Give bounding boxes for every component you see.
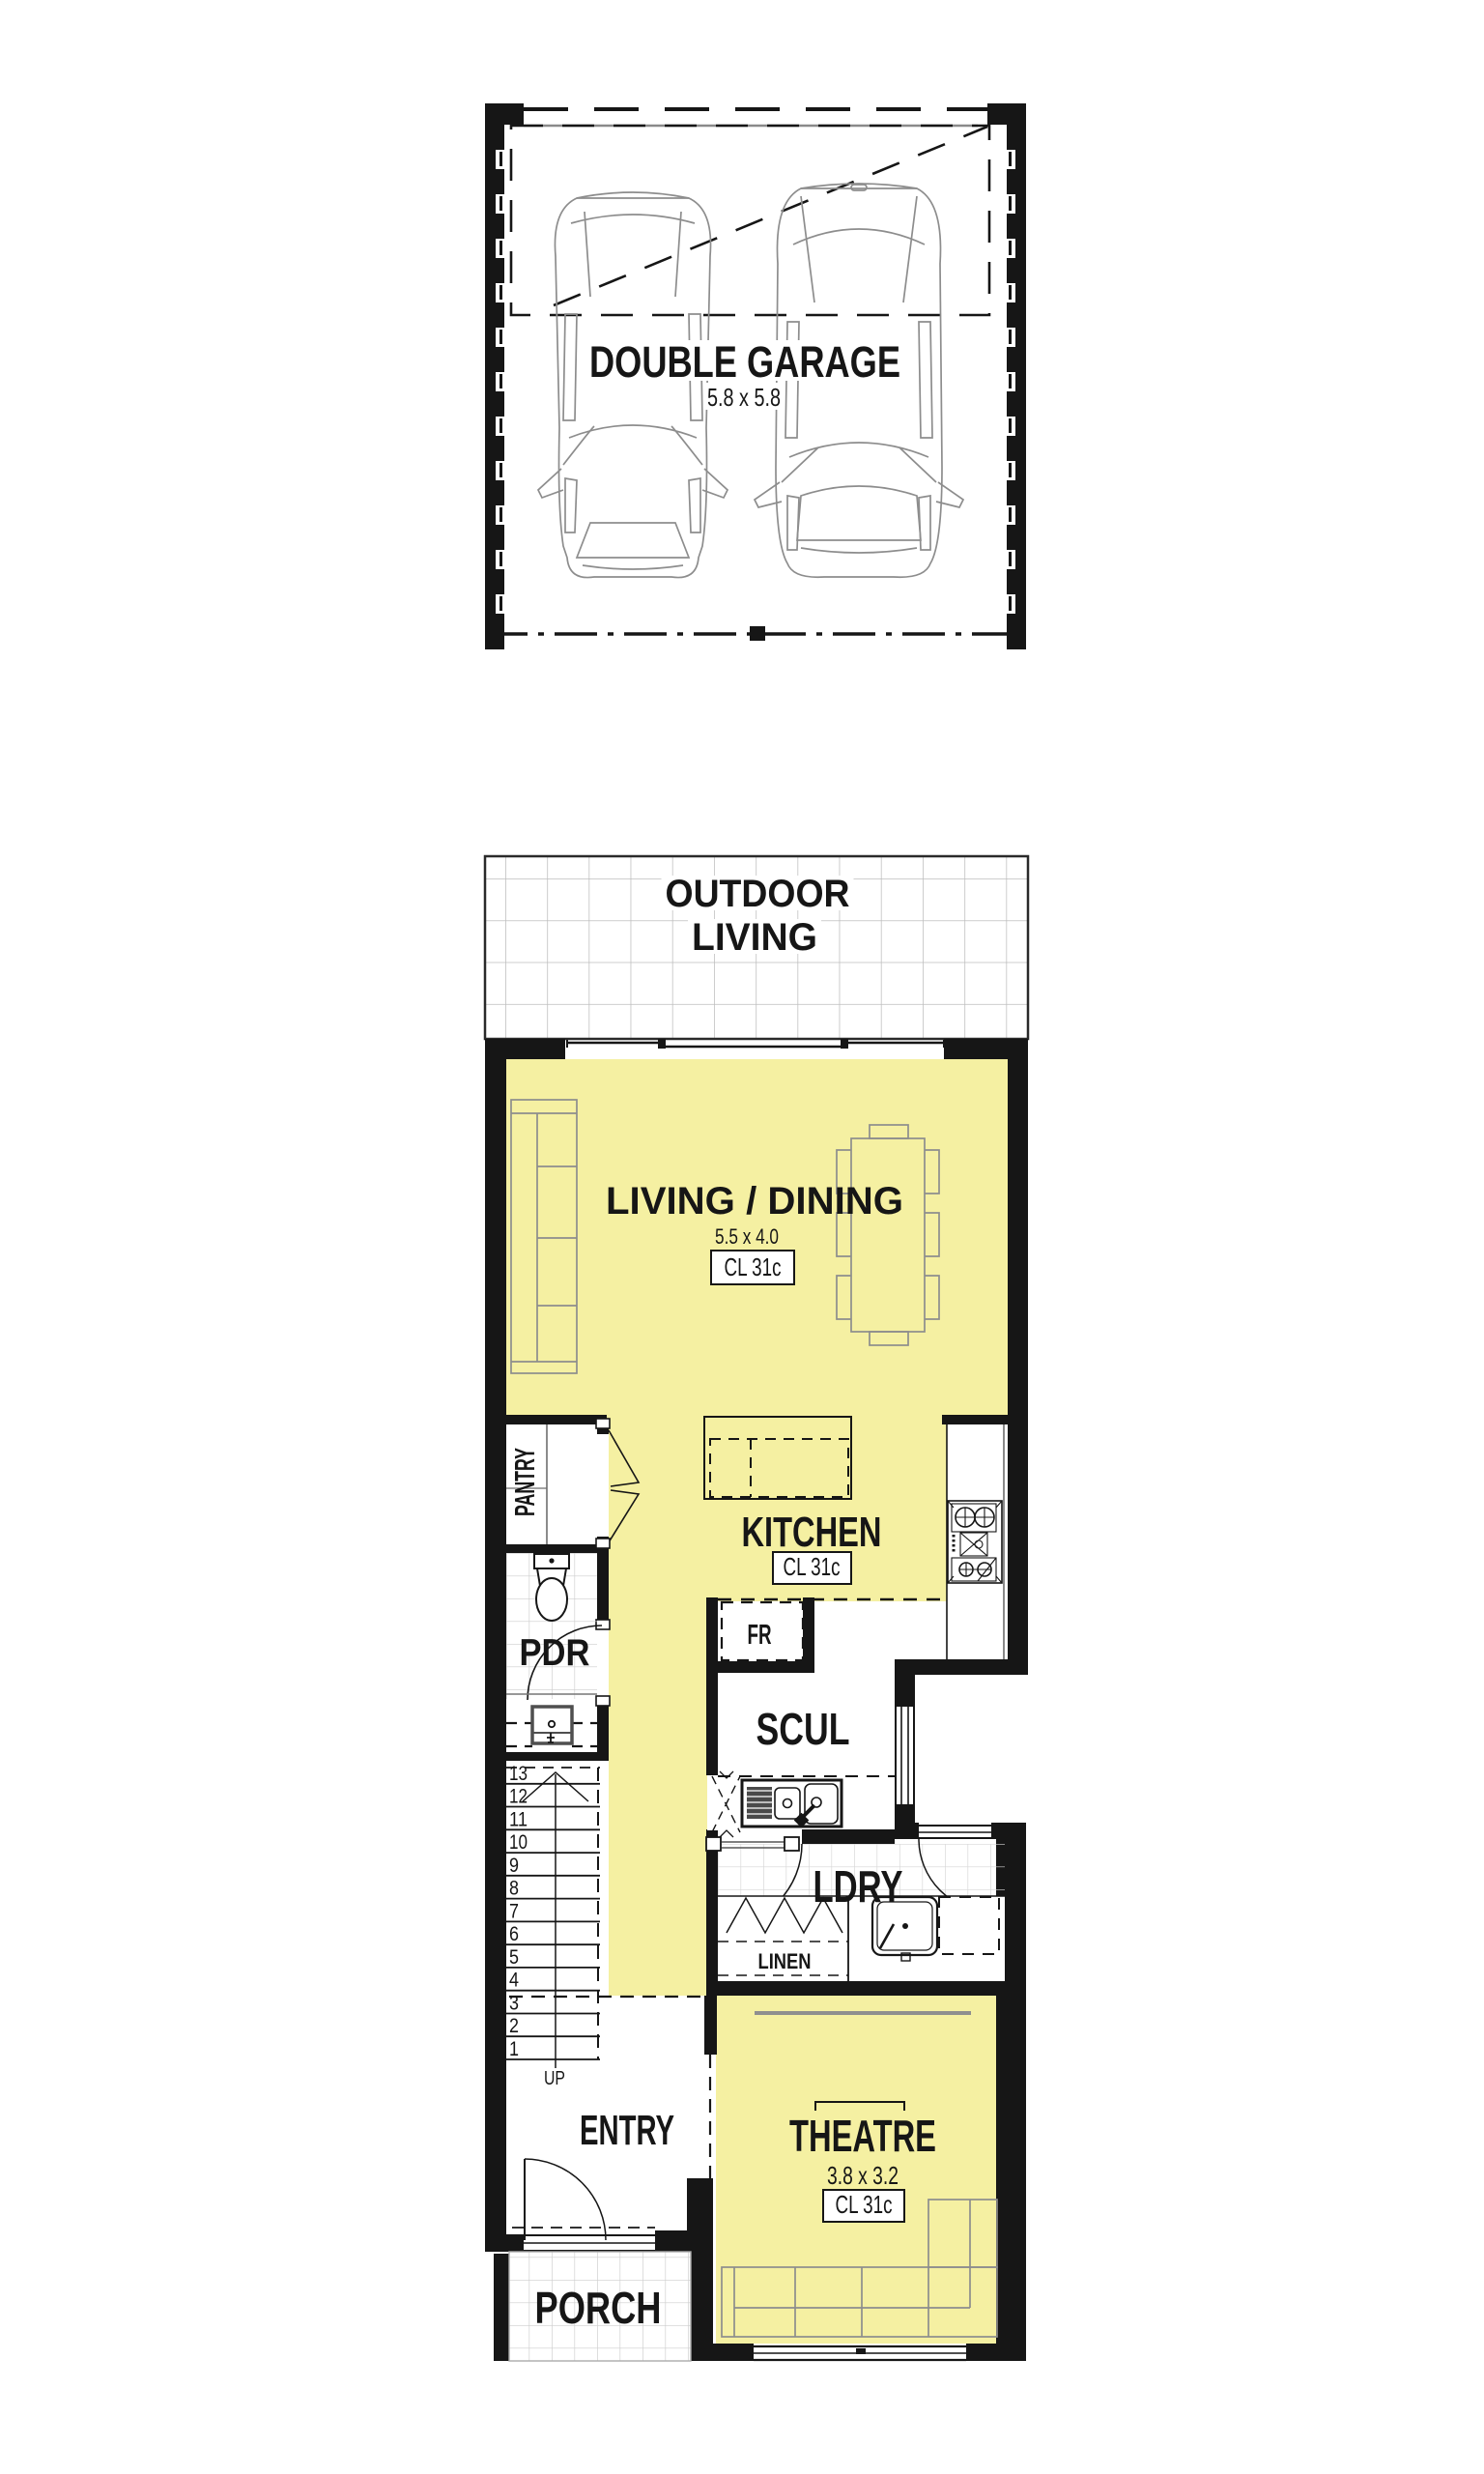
svg-text:ENTRY: ENTRY bbox=[580, 2107, 674, 2154]
svg-text:4: 4 bbox=[509, 1970, 519, 1992]
svg-text:PDR: PDR bbox=[520, 1632, 590, 1674]
svg-text:3.8 x 3.2: 3.8 x 3.2 bbox=[827, 2161, 899, 2190]
svg-text:8: 8 bbox=[509, 1878, 519, 1900]
svg-text:7: 7 bbox=[509, 1900, 519, 1922]
svg-text:12: 12 bbox=[509, 1786, 528, 1808]
svg-text:KITCHEN: KITCHEN bbox=[742, 1509, 882, 1556]
svg-text:10: 10 bbox=[509, 1831, 528, 1854]
svg-text:THEATRE: THEATRE bbox=[789, 2111, 936, 2161]
svg-text:CL 31c: CL 31c bbox=[836, 2190, 893, 2219]
svg-text:13: 13 bbox=[509, 1763, 528, 1785]
svg-text:11: 11 bbox=[509, 1808, 528, 1830]
svg-text:LIVING / DINING: LIVING / DINING bbox=[606, 1180, 903, 1223]
svg-text:CL 31c: CL 31c bbox=[784, 1552, 841, 1581]
svg-text:1: 1 bbox=[509, 2038, 519, 2060]
svg-text:DOUBLE GARAGE: DOUBLE GARAGE bbox=[589, 337, 900, 387]
svg-text:5: 5 bbox=[509, 1946, 519, 1969]
svg-text:SCUL: SCUL bbox=[756, 1704, 850, 1754]
svg-text:LINEN: LINEN bbox=[758, 1949, 812, 1973]
svg-text:5.5 x 4.0: 5.5 x 4.0 bbox=[715, 1224, 779, 1249]
svg-text:PORCH: PORCH bbox=[535, 2283, 662, 2333]
svg-text:LIVING: LIVING bbox=[692, 916, 817, 959]
svg-text:6: 6 bbox=[509, 1923, 519, 1945]
svg-text:PANTRY: PANTRY bbox=[510, 1448, 541, 1516]
svg-text:OUTDOOR: OUTDOOR bbox=[666, 873, 850, 915]
svg-text:LDRY: LDRY bbox=[813, 1861, 903, 1912]
svg-text:2: 2 bbox=[509, 2015, 519, 2037]
svg-text:9: 9 bbox=[509, 1855, 519, 1877]
svg-text:FR: FR bbox=[748, 1620, 772, 1651]
svg-text:5.8 x 5.8: 5.8 x 5.8 bbox=[707, 383, 781, 412]
svg-text:CL 31c: CL 31c bbox=[725, 1252, 782, 1281]
svg-text:UP: UP bbox=[544, 2068, 565, 2089]
